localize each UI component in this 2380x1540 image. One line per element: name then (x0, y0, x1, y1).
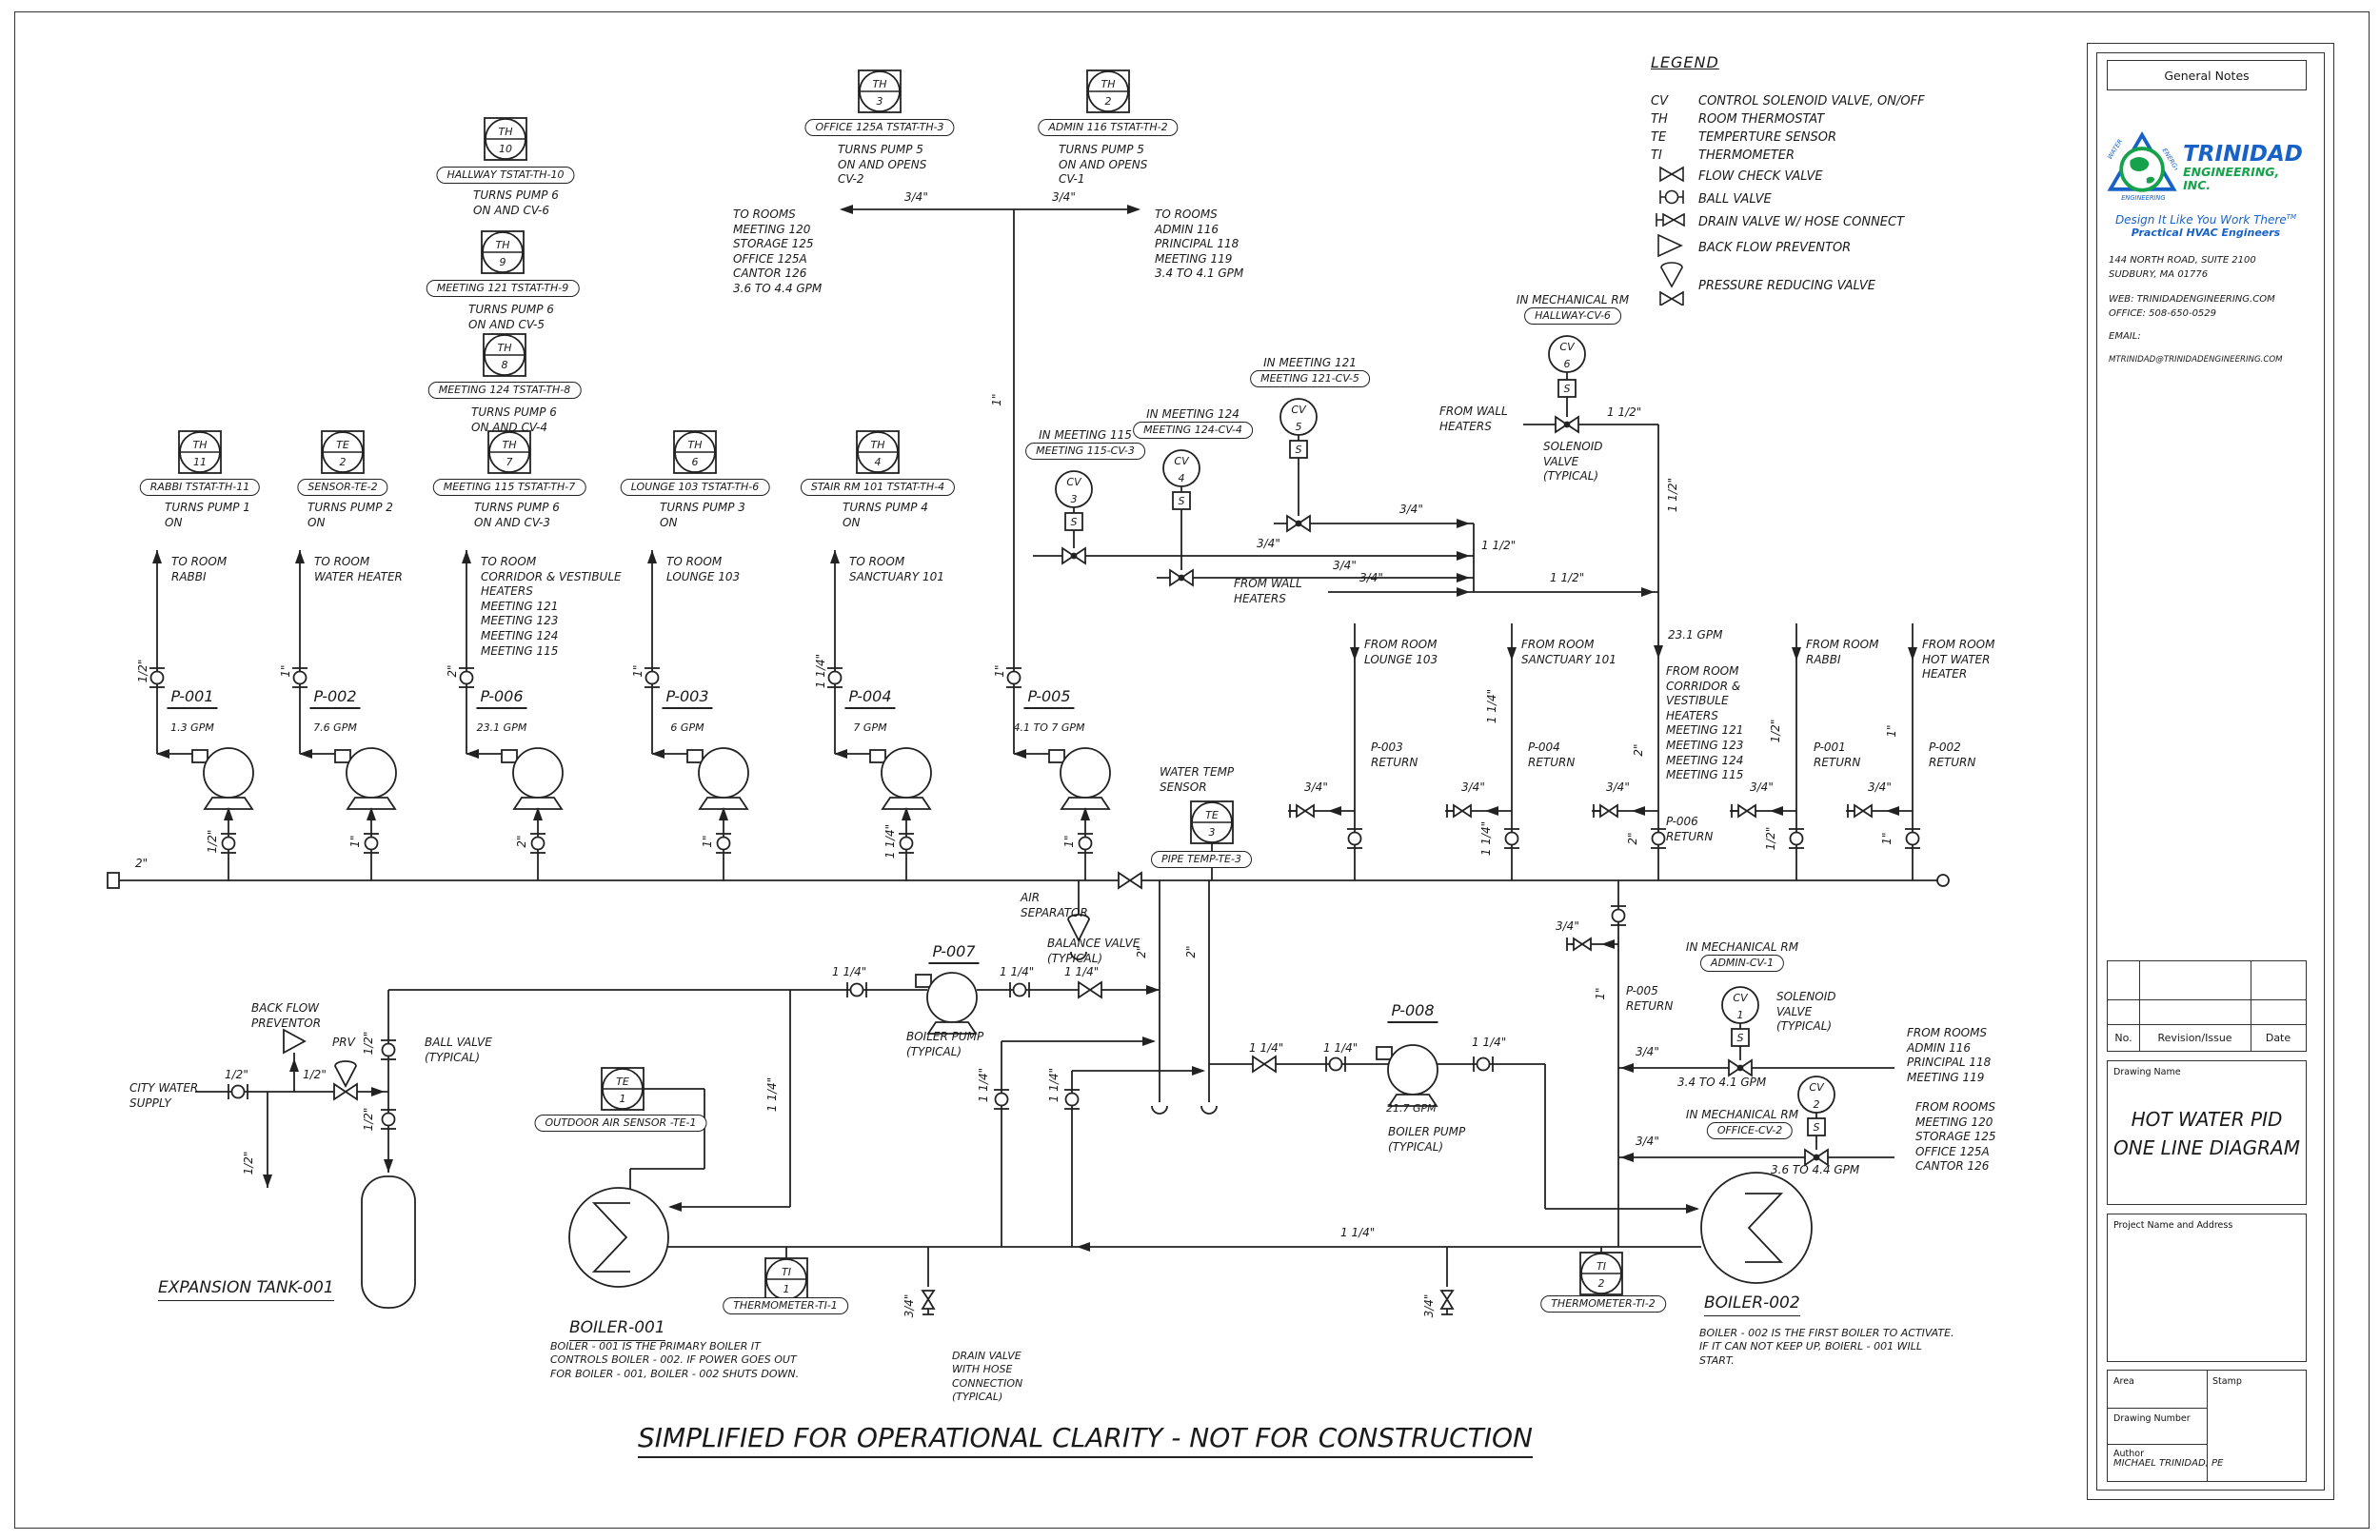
symbol-text: TE (616, 1076, 629, 1088)
symbol-text: 8 (502, 359, 508, 371)
diagram-label: 1 1/2" (1550, 571, 1584, 586)
diagram-label: 1" (279, 664, 294, 677)
pump-gpm: 7 GPM (853, 721, 886, 734)
pump-volute (1049, 750, 1064, 762)
symbol-text: S (1296, 444, 1302, 456)
diagram-label: SOLENOID VALVE (TYPICAL) (1543, 440, 1603, 484)
diagram-label: 1 1/2" (1481, 539, 1516, 554)
diagram-label: IN MECHANICAL RM (1686, 940, 1798, 956)
diagram-label: 3/4" (1052, 190, 1076, 206)
diagram-label: 3/4" (1636, 1135, 1659, 1150)
diagram-label: TURNS PUMP 1 ON (165, 501, 250, 530)
diagram-label: 1 1/4" (814, 654, 829, 688)
diagram-label: IN MECHANICAL RM (1517, 293, 1629, 308)
diagram-label: BOILER-001 (569, 1317, 665, 1341)
hose-cap (1567, 938, 1574, 951)
legend-item: BALL VALVE (1651, 188, 1965, 210)
flow-arrow-icon (466, 749, 479, 759)
ball-valve-icon (716, 834, 731, 853)
ball-valve-icon (1905, 829, 1920, 848)
diagram-label: 3/4" (1606, 780, 1630, 796)
pump-body (882, 748, 931, 798)
flow-arrow-icon (1886, 806, 1899, 816)
revision-table: No. Revision/Issue Date (2107, 960, 2307, 1052)
diagram-label: TO ROOMS ADMIN 116 PRINCIPAL 118 MEETING… (1155, 207, 1243, 282)
diagram-label: 1 1/2" (1666, 478, 1681, 512)
equipment-tag: STAIR RM 101 TSTAT-TH-4 (801, 479, 955, 496)
pump-body (204, 748, 253, 798)
diagram-label: 1" (993, 664, 1008, 677)
equipment-tag: MEETING 115 TSTAT-TH-7 (433, 479, 586, 496)
symbol-text: 4 (875, 456, 882, 468)
diagram-label: TURNS PUMP 5 ON AND OPENS CV-1 (1059, 143, 1147, 188)
diagram-label: TURNS PUMP 6 ON AND CV-3 (474, 501, 560, 530)
ball-valve-icon (1326, 1056, 1345, 1072)
legend-item-label: THERMOMETER (1698, 148, 1795, 163)
equipment-tag: ADMIN 116 TSTAT-TH-2 (1038, 119, 1178, 136)
flow-arrow-icon (1077, 1242, 1090, 1252)
boiler-return-pipes (666, 1247, 1701, 1287)
pump-tag: P-001 (167, 687, 217, 709)
ball (1014, 984, 1026, 997)
pump-tag: P-005 (1023, 687, 1074, 709)
symbol-text: CV (1066, 476, 1082, 488)
valve (1738, 805, 1755, 817)
ball (232, 1086, 245, 1098)
flow-arrow-icon (830, 550, 840, 563)
flow-check-valve-icon (1253, 1056, 1276, 1072)
ball (1506, 833, 1518, 845)
diagram-label: TURNS PUMP 2 ON (307, 501, 393, 530)
instrument-bubble-ti-2: TI2 (1580, 1253, 1622, 1294)
flow-arrow-icon (1350, 647, 1359, 661)
pump-tag: P-006 (476, 687, 526, 709)
diagram-label: 1" (1885, 724, 1900, 737)
diagram-label: 1" (631, 664, 646, 677)
legend-item: PRESSURE REDUCING VALVE (1651, 262, 1965, 309)
diagram-label: P-006 RETURN (1666, 815, 1713, 844)
valve-dot (1071, 553, 1078, 560)
ball-valve-icon (292, 668, 307, 687)
drain-valve-icon (1447, 804, 1471, 818)
pump-symbol-p-005 (1049, 748, 1110, 809)
legend-item-label: BACK FLOW PREVENTOR (1698, 241, 1851, 255)
diagram-label: 3/4" (1304, 780, 1328, 796)
flow-arrow-icon (1620, 1153, 1634, 1162)
diagram-label: 1" (348, 835, 364, 847)
flow-arrow-icon (668, 1202, 682, 1212)
instrument-bubble-cv-1: CV1 (1722, 987, 1758, 1023)
symbol-text: 11 (193, 456, 207, 468)
ball-valve-icon (1078, 834, 1093, 853)
pump-tag: P-007 (928, 942, 979, 964)
flow-arrow-icon (1632, 806, 1645, 816)
company-tagline: Design It Like You Work ThereTM (2107, 213, 2305, 227)
diagram-label: TO ROOM LOUNGE 103 (666, 555, 740, 584)
symbol-text: CV (1809, 1081, 1825, 1094)
ball-valve-icon (645, 668, 660, 687)
equipment-tag: MEETING 124-CV-4 (1133, 422, 1253, 439)
diagram-label: 3/4" (1461, 780, 1485, 796)
boiler-002-symbol (1701, 1173, 1812, 1283)
diagram-label: BALL VALVE (TYPICAL) (425, 1036, 492, 1065)
diagram-label: 3/4" (902, 1294, 918, 1318)
diagram-label: 1 1/4" (1249, 1041, 1283, 1056)
flow-arrow-icon (1770, 806, 1783, 816)
ball-valve-icon (381, 1110, 396, 1129)
symbol-text: TI (1597, 1260, 1606, 1273)
diagram-label: 1 1/4" (1340, 1226, 1375, 1241)
symbol-text: 9 (500, 256, 506, 268)
legend-item-label: CONTROL SOLENOID VALVE, ON/OFF (1698, 94, 1925, 109)
equipment-tag: THERMOMETER-TI-2 (1540, 1295, 1666, 1313)
flow-arrow-icon (834, 749, 847, 759)
diagram-label: TO ROOM RABBI (171, 555, 227, 584)
valve-dot (1296, 521, 1302, 527)
equipment-tag: OUTDOOR AIR SENSOR -TE-1 (534, 1115, 706, 1132)
legend-item: TITHERMOMETER (1651, 147, 1965, 165)
diagram-label: 2" (1184, 945, 1200, 958)
flow-arrow-icon (1457, 519, 1470, 528)
flow-arrow-icon (1485, 806, 1498, 816)
ball (1330, 1058, 1342, 1071)
symbol-text: TH (498, 342, 512, 354)
legend: LEGEND CVCONTROL SOLENOID VALVE, ON/OFFT… (1651, 53, 1965, 309)
symbol-text: TH (871, 439, 885, 451)
solenoid-valve-icon (1062, 548, 1085, 563)
hose-cap (1732, 804, 1738, 818)
instrument-bubble-th-3: TH3 (859, 70, 901, 112)
company-email-label: EMAIL: (2109, 330, 2305, 345)
check-valve-icon (1253, 1056, 1276, 1072)
ball (383, 1044, 395, 1056)
diagram-label: P-003 RETURN (1371, 740, 1418, 770)
symbol-text: 6 (1564, 358, 1571, 370)
flow-arrow-icon (1507, 647, 1517, 661)
diagram-label: TURNS PUMP 6 ON AND CV-6 (473, 188, 559, 218)
pump-volute (192, 750, 208, 762)
solenoid-s-box: S (1808, 1118, 1825, 1135)
bowtie-valve-icon (1651, 165, 1698, 188)
diagram-label: 3.4 TO 4.1 GPM (1677, 1076, 1766, 1091)
pump-body (347, 748, 396, 798)
diagram-label: BOILER-002 (1704, 1293, 1800, 1316)
diagram-label: TO ROOM SANCTUARY 101 (849, 555, 944, 584)
instrument-bubble-cv-3: CV3 (1056, 471, 1092, 507)
valve-dot (1564, 422, 1571, 428)
drain-valve-icon (922, 1291, 934, 1314)
legend-item: CVCONTROL SOLENOID VALVE, ON/OFF (1651, 92, 1965, 110)
diagram-label: 1 1/4" (1000, 965, 1034, 980)
author-name: MICHAEL TRINIDAD, PE (2113, 1458, 2223, 1469)
company-name-2: ENGINEERING, INC. (2183, 166, 2305, 192)
legend-abbrev: TH (1651, 112, 1698, 127)
ball-valve-icon (381, 1040, 396, 1059)
symbol-text: TI (782, 1266, 791, 1278)
equipment-tag: ADMIN-CV-1 (1700, 955, 1784, 972)
instrument-bubble-te-2: TE2 (322, 431, 364, 473)
diagram-label: P-001 RETURN (1814, 740, 1860, 770)
symbol-text: 2 (1814, 1098, 1820, 1111)
instrument-bubble-th-7: TH7 (488, 431, 530, 473)
pump-body (927, 973, 977, 1022)
valve-dot (1737, 1065, 1744, 1072)
diagram-label: 1 1/2" (1607, 405, 1641, 421)
flow-arrow-icon (651, 749, 664, 759)
diagram-label: 1 1/4" (1472, 1036, 1506, 1051)
diagram-label: 1 1/4" (765, 1077, 781, 1112)
diagram-label: BACK FLOW PREVENTOR (251, 1001, 321, 1031)
revision-issue-header: Revision/Issue (2139, 1032, 2251, 1044)
symbol-text: 10 (499, 143, 512, 155)
diagram-label: P-005 RETURN (1626, 984, 1673, 1014)
svg-text:WATER: WATER (2107, 138, 2124, 161)
solenoid-valve-icon (1287, 516, 1310, 531)
diagram-label: BOILER - 001 IS THE PRIMARY BOILER IT CO… (550, 1340, 799, 1381)
flow-arrow-icon (299, 749, 312, 759)
legend-item: DRAIN VALVE W/ HOSE CONNECT (1651, 210, 1965, 233)
instrument-bubble-th-2: TH2 (1087, 70, 1129, 112)
equipment-tag: OFFICE 125A TSTAT-TH-3 (804, 119, 954, 136)
diagram-label: WATER TEMP SENSOR (1160, 765, 1234, 795)
ball (294, 672, 307, 684)
instrument-bubble-cv-4: CV4 (1163, 450, 1200, 486)
flow-arrow-icon (1013, 749, 1026, 759)
pump-symbol-p-003 (687, 748, 748, 809)
hose-cap (1447, 804, 1454, 818)
diagram-label: 1 1/4" (832, 965, 866, 980)
symbol-text: CV (1291, 404, 1307, 416)
diagram-label: 1" (990, 393, 1005, 405)
drawing-name-box: Drawing Name HOT WATER PID ONE LINE DIAG… (2107, 1060, 2307, 1205)
diagram-label: 3/4" (1257, 537, 1280, 552)
diagram-label: 2" (515, 835, 530, 847)
ball (996, 1094, 1008, 1106)
valve-dot (1814, 1155, 1820, 1161)
symbol-text: 2 (1105, 95, 1112, 108)
pump-tag: P-004 (844, 687, 895, 709)
ball-valve-icon (1504, 829, 1519, 848)
legend-abbrev: TE (1651, 130, 1698, 145)
diagram-label: IN MEETING 115 (1039, 428, 1132, 444)
diagram-label: TO ROOM CORRIDOR & VESTIBULE HEATERS MEE… (481, 555, 622, 659)
project-box: Project Name and Address (2107, 1214, 2307, 1362)
diagram-label: FROM ROOM HOT WATER HEATER (1922, 638, 1994, 682)
pump-body (699, 748, 748, 798)
equipment-tag: OFFICE-CV-2 (1707, 1122, 1793, 1139)
symbol-text: TH (873, 78, 887, 90)
pump-symbol-p-006 (502, 748, 563, 809)
diagram-label: TURNS PUMP 6 ON AND CV-5 (468, 303, 554, 332)
diagram-label: 1/2" (1764, 827, 1779, 851)
instrument-bubble-th-8: TH8 (484, 334, 526, 376)
pump-gpm: 4.1 TO 7 GPM (1013, 721, 1084, 734)
flow-arrow-icon (647, 550, 657, 563)
check-valve-icon (1119, 873, 1141, 888)
diagram-label: FROM ROOM RABBI (1806, 638, 1878, 667)
diagram-label: IN MEETING 124 (1146, 407, 1240, 423)
backflow-valve-icon (1651, 233, 1698, 262)
ball-valve-icon (1064, 1090, 1080, 1109)
equipment-tag: HALLWAY TSTAT-TH-10 (436, 167, 574, 184)
valve (1297, 805, 1314, 817)
backflow-preventor-icon (284, 1030, 305, 1058)
flow-arrow-icon (371, 1087, 385, 1096)
diagram-label: PRV (332, 1036, 355, 1051)
company-name: TRINIDAD (2183, 144, 2305, 166)
diagram-label: BOILER PUMP (TYPICAL) (906, 1030, 983, 1059)
flow-arrow-icon (1457, 587, 1470, 597)
diagram-label: FROM ROOM LOUNGE 103 (1364, 638, 1438, 667)
diagram-label: FROM WALL HEATERS (1439, 405, 1508, 434)
company-logo-area: WATER ENERGY ENGINEERING TRINIDAD ENGINE… (2107, 129, 2305, 365)
legend-item: TETEMPERTURE SENSOR (1651, 128, 1965, 147)
legend-title: LEGEND (1651, 53, 1965, 71)
pump-volute (502, 750, 517, 762)
ball-valve-icon (1006, 668, 1021, 687)
symbol-text: TH (193, 439, 208, 451)
ball (1349, 833, 1361, 845)
drain-valve-icon (1290, 804, 1314, 818)
flow-arrow-icon (1686, 1204, 1699, 1214)
pump-symbol-p-007 (916, 973, 977, 1034)
valve-dot (1179, 575, 1185, 582)
trinidad-logo-icon: WATER ENERGY ENGINEERING (2107, 129, 2177, 206)
boiler-supply-pipes (1002, 880, 1209, 1247)
diagram-label: EXPANSION TANK-001 (158, 1277, 334, 1301)
ball (1080, 838, 1092, 850)
flow-arrow-icon (1457, 551, 1470, 561)
prv-valve-icon (1651, 262, 1698, 309)
instrument-bubble-cv-6: CV6 (1549, 336, 1585, 372)
symbol-text: 2 (340, 456, 347, 468)
diagram-label: 2" (1632, 743, 1647, 756)
solenoid-valve-icon (1556, 417, 1578, 432)
symbol-text: 1 (1737, 1009, 1744, 1021)
legend-item: FLOW CHECK VALVE (1651, 165, 1965, 188)
pump-body (1388, 1045, 1438, 1095)
diagram-label: 1" (1880, 832, 1895, 844)
flow-arrow-icon (1457, 573, 1470, 582)
flow-arrow-icon (1142, 1037, 1156, 1046)
diagram-label: FROM ROOMS ADMIN 116 PRINCIPAL 118 MEETI… (1907, 1026, 1991, 1085)
diagram-label: BALANCE VALVE (TYPICAL) (1047, 937, 1140, 966)
pump-gpm: 1.3 GPM (170, 721, 214, 734)
ball (223, 838, 235, 850)
flow-arrow-icon (295, 550, 305, 563)
solenoid-valve-icon (1729, 1060, 1752, 1076)
company-subtitle: Practical HVAC Engineers (2107, 227, 2305, 239)
diagram-label: 3/4" (1636, 1045, 1659, 1060)
pump-symbol-p-001 (192, 748, 253, 809)
flow-check-valve-icon (1079, 982, 1101, 997)
diagram-label: BOILER - 002 IS THE FIRST BOILER TO ACTI… (1699, 1327, 1954, 1368)
diagram-label: 3/4" (1750, 780, 1774, 796)
pump-gpm: 23.1 GPM (477, 721, 527, 734)
solenoid-s-box: S (1290, 441, 1307, 458)
diagram-label: 3/4" (1399, 503, 1423, 518)
diagram-label: 1 1/4" (1479, 821, 1495, 856)
ball (851, 984, 863, 997)
ball (1791, 833, 1803, 845)
diagram-label: 1" (1062, 835, 1078, 847)
ball (366, 838, 378, 850)
instrument-bubble-th-6: TH6 (674, 431, 716, 473)
ball (901, 838, 913, 850)
valve (1454, 805, 1471, 817)
equipment-tag: HALLWAY-CV-6 (1524, 307, 1621, 325)
symbol-text: 7 (506, 456, 513, 468)
pump-symbol-p-002 (335, 748, 396, 809)
flow-arrow-icon (1641, 587, 1655, 597)
flow-arrow-icon (1328, 806, 1341, 816)
drawing-name: HOT WATER PID ONE LINE DIAGRAM (2108, 1105, 2306, 1162)
symbol-text: S (1564, 383, 1571, 395)
valve (1574, 938, 1591, 950)
equipment-tag: MEETING 121-CV-5 (1250, 370, 1370, 387)
solenoid-s-box: S (1732, 1029, 1749, 1046)
legend-item-label: BALL VALVE (1698, 192, 1772, 207)
ball (383, 1114, 395, 1126)
legend-item: BACK FLOW PREVENTOR (1651, 233, 1965, 262)
instrument-bubble-th-4: TH4 (857, 431, 899, 473)
pump-body (513, 748, 563, 798)
instrument-bubble-ti-1: TI1 (765, 1258, 807, 1300)
ball-valve-icon (459, 668, 474, 687)
ball-valve-icon (899, 834, 914, 853)
flow-arrow-icon (1654, 645, 1663, 659)
expansion-tank (362, 1176, 415, 1308)
ball (1008, 672, 1021, 684)
diagram-label: P-002 RETURN (1929, 740, 1975, 770)
symbol-text: 2 (1598, 1277, 1605, 1290)
symbol-text: CV (1559, 341, 1576, 353)
flow-arrow-icon (156, 749, 169, 759)
diagram-label: DRAIN VALVE WITH HOSE CONNECTION (TYPICA… (952, 1350, 1022, 1404)
diagram-label: 2" (1626, 832, 1641, 844)
company-address: 144 NORTH ROAD, SUITE 2100 SUDBURY, MA 0… (2109, 254, 2305, 282)
diagram-label: SOLENOID VALVE (TYPICAL) (1776, 990, 1836, 1035)
drain-cup-icon (1152, 1106, 1167, 1114)
diagram-label: 23.1 GPM (1668, 628, 1722, 643)
diagram-label: 1/2" (225, 1068, 248, 1083)
diagram-label: 1/2" (303, 1068, 327, 1083)
diagram-label: FROM WALL HEATERS (1234, 577, 1302, 606)
diagram-label: 1/2" (1769, 720, 1784, 743)
equipment-tag: LOUNGE 103 TSTAT-TH-6 (621, 479, 770, 496)
drain-valve-icon (1848, 804, 1872, 818)
company-contact: WEB: TRINIDADENGINEERING.COM OFFICE: 508… (2109, 293, 2305, 321)
revision-no-header: No. (2108, 1032, 2139, 1044)
pump-tag: P-002 (309, 687, 360, 709)
stamp-box: Area Stamp Drawing Number Author MICHAEL… (2107, 1370, 2307, 1482)
ball-valve-icon (1010, 982, 1029, 997)
pump-volute (870, 750, 885, 762)
svg-text:ENGINEERING: ENGINEERING (2121, 194, 2165, 202)
ball-valve-icon (1651, 829, 1666, 848)
symbol-text: S (1814, 1121, 1820, 1134)
diagram-label: TURNS PUMP 3 ON (660, 501, 745, 530)
instrument-bubble-cv-5: CV5 (1280, 399, 1317, 435)
diagram-label: 1" (701, 835, 716, 847)
hose-cap (1290, 804, 1297, 818)
diagram-label: 3/4" (1556, 919, 1579, 935)
ball (1653, 833, 1665, 845)
diagram-label: TO ROOM WATER HEATER (314, 555, 403, 584)
symbol-text: 4 (1179, 472, 1185, 484)
ball (1613, 910, 1625, 922)
diagram-label: BOILER PUMP (TYPICAL) (1388, 1125, 1465, 1155)
